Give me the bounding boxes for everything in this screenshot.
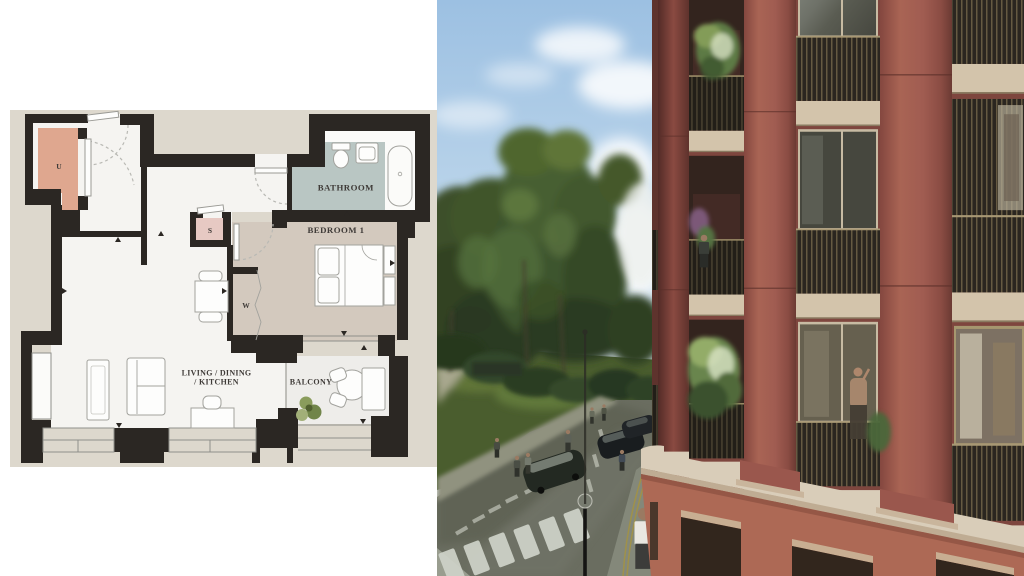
svg-text:LIVING / DINING: LIVING / DINING (182, 369, 252, 378)
svg-text:/ KITCHEN: / KITCHEN (193, 378, 239, 387)
svg-text:BALCONY: BALCONY (290, 378, 332, 387)
svg-text:BATHROOM: BATHROOM (318, 183, 374, 193)
svg-text:W: W (242, 301, 250, 310)
svg-text:U: U (56, 162, 62, 171)
svg-text:BEDROOM 1: BEDROOM 1 (307, 225, 364, 235)
svg-text:S: S (208, 226, 212, 235)
